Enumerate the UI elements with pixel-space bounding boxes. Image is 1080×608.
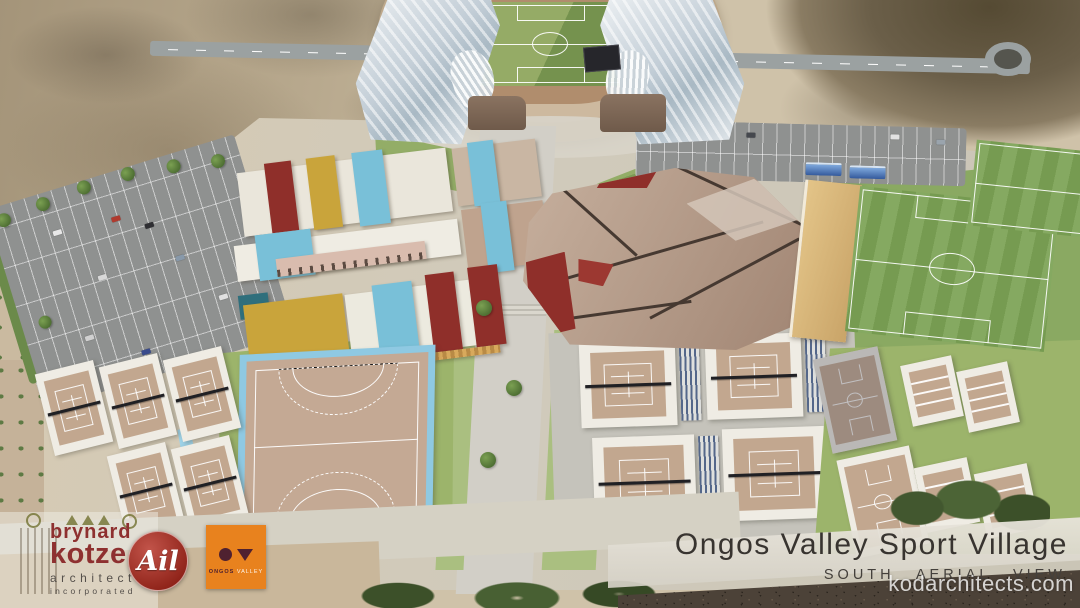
stadium-pavilion-right bbox=[600, 94, 666, 132]
ongos-circle-icon bbox=[219, 548, 232, 561]
indoor-arena-roof bbox=[523, 168, 815, 350]
tennis-surface bbox=[179, 446, 240, 521]
car bbox=[936, 140, 945, 145]
tree bbox=[480, 452, 496, 468]
volleyball-surface bbox=[908, 365, 955, 418]
car bbox=[746, 133, 755, 138]
tennis-surface bbox=[43, 371, 104, 446]
car bbox=[85, 334, 95, 341]
tree bbox=[165, 158, 182, 175]
tennis-surface bbox=[171, 357, 232, 432]
bus bbox=[849, 165, 885, 179]
ongos-word: ONGOS bbox=[209, 569, 234, 575]
tree bbox=[0, 211, 13, 228]
training-soccer-field-2 bbox=[968, 140, 1080, 239]
spiral-motif-icon bbox=[26, 513, 41, 528]
car bbox=[175, 254, 185, 261]
tennis-surface bbox=[715, 342, 792, 410]
render-canvas: brynard kotze architects incorporated Ai… bbox=[0, 0, 1080, 608]
tree bbox=[37, 314, 53, 330]
tree bbox=[209, 152, 226, 169]
bus bbox=[805, 162, 841, 176]
tennis-surface bbox=[733, 436, 815, 511]
sports-halls-cluster bbox=[206, 131, 559, 382]
tree bbox=[506, 380, 522, 396]
tennis-court bbox=[579, 341, 678, 428]
arena-roof-seam bbox=[649, 238, 800, 320]
car bbox=[111, 215, 121, 222]
ail-monogram: Ail bbox=[137, 546, 178, 577]
ongos-valley-caption: ONGOS VALLEY bbox=[206, 569, 266, 575]
tree bbox=[476, 300, 492, 316]
tree bbox=[75, 179, 92, 196]
slide-title: Ongos Valley Sport Village bbox=[675, 528, 1068, 562]
car bbox=[52, 229, 62, 236]
arena-red-facet-mid bbox=[578, 259, 613, 286]
pitch-center-circle bbox=[532, 32, 568, 56]
stadium-pavilion-left bbox=[468, 96, 526, 130]
tree bbox=[34, 195, 51, 212]
watermark: kodarchitects.com bbox=[888, 571, 1074, 597]
valley-word: VALLEY bbox=[237, 569, 263, 575]
car bbox=[97, 274, 107, 281]
brynard-kotze-sub-descriptor: incorporated bbox=[50, 587, 146, 596]
tennis-surface bbox=[107, 364, 168, 439]
tree bbox=[119, 165, 136, 182]
car bbox=[144, 222, 154, 229]
pitch-penalty-box-bottom bbox=[517, 67, 585, 83]
volleyball-surface bbox=[964, 371, 1011, 424]
ongos-triangle-icon bbox=[237, 549, 253, 561]
bleacher-stand bbox=[679, 342, 702, 421]
tennis-surface bbox=[590, 351, 667, 419]
roundabout-island bbox=[994, 49, 1022, 69]
stadium-scoreboard bbox=[583, 44, 621, 72]
ail-logo: Ail bbox=[128, 531, 188, 591]
roundabout bbox=[985, 42, 1031, 76]
ongos-valley-logo: ONGOS VALLEY bbox=[206, 525, 266, 589]
pitch-penalty-box-top bbox=[517, 5, 585, 21]
car bbox=[890, 134, 899, 139]
